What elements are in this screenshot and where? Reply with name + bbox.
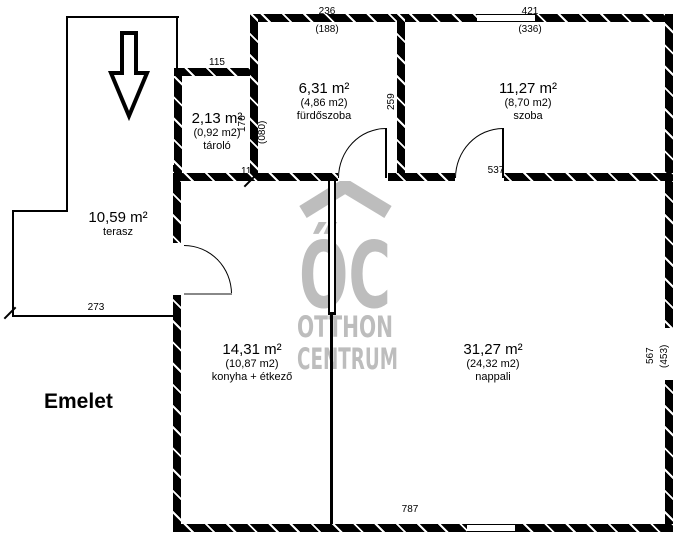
room-name: fürdőszoba (254, 110, 394, 123)
room-area-reduced: (4,86 m2) (254, 97, 394, 110)
dimension-tick (4, 307, 17, 320)
room-area-reduced: (0,92 m2) (178, 127, 256, 140)
wall-tarolo-top (174, 68, 258, 76)
room-area-reduced: (8,70 m2) (458, 97, 598, 110)
wall-konyha-nappali (328, 181, 336, 315)
terasz-edge-bottom (12, 315, 174, 317)
watermark-line1: OTTHON (297, 310, 393, 344)
room-area: 2,13 m² (178, 110, 256, 127)
dim-tarolo-top: 115 (197, 57, 237, 68)
room-name: szoba (458, 110, 598, 123)
room-name: nappali (423, 371, 563, 384)
room-area: 6,31 m² (254, 80, 394, 97)
furdoszoba-door-leaf (385, 128, 387, 178)
room-label-nappali: 31,27 m² (24,32 m2) nappali (423, 341, 563, 384)
room-area: 10,59 m² (50, 209, 186, 226)
floor-title: Emelet (44, 390, 113, 414)
room-area: 11,27 m² (458, 80, 598, 97)
dim-right-side: 567 (645, 336, 657, 376)
konyha-nappali-boundary (330, 315, 333, 524)
room-label-furdoszoba: 6,31 m² (4,86 m2) fürdőszoba (254, 80, 394, 123)
room-name: terasz (50, 226, 186, 239)
wall-bottom (173, 524, 673, 532)
down-arrow-icon (101, 30, 161, 125)
terasz-door-arc (184, 245, 232, 294)
room-label-szoba: 11,27 m² (8,70 m2) szoba (458, 80, 598, 123)
terasz-door-opening (173, 243, 181, 295)
wall-right (665, 14, 673, 532)
room-area: 14,31 m² (182, 341, 322, 358)
wall-top (250, 14, 673, 22)
szoba-door-arc (455, 128, 503, 178)
dim-szoba-top-reduced: (336) (505, 24, 555, 35)
terasz-edge-left-upper (66, 16, 68, 212)
watermark-logo-text: ŐC (299, 221, 391, 329)
room-name: tároló (178, 140, 256, 153)
terasz-edge-right (176, 16, 178, 70)
room-area-reduced: (24,32 m2) (423, 358, 563, 371)
dim-terasz-bottom: 273 (76, 302, 116, 313)
room-label-terasz: 10,59 m² terasz (50, 209, 186, 239)
room-name: konyha + étkező (182, 371, 322, 384)
terasz-edge-left-lower (12, 210, 14, 317)
terasz-door-leaf (184, 293, 232, 295)
room-area: 31,27 m² (423, 341, 563, 358)
window-bottom (467, 524, 515, 532)
dim-bottom-total: 787 (390, 504, 430, 515)
window-top (477, 14, 535, 22)
dim-right-side-reduced: (453) (659, 330, 671, 382)
terasz-edge-top (66, 16, 179, 18)
floor-plan: ŐC OTTHON CENTRUM 236 (188) 421 (336) 11… (0, 0, 687, 547)
watermark-roof-icon (303, 186, 388, 212)
szoba-door-leaf (502, 128, 504, 178)
room-label-konyha: 14,31 m² (10,87 m2) konyha + étkező (182, 341, 322, 384)
dim-furdoszoba-top-reduced: (188) (302, 24, 352, 35)
wall-furdoszoba-szoba (397, 14, 405, 181)
furdoszoba-door-arc (338, 128, 386, 178)
room-area-reduced: (10,87 m2) (182, 358, 322, 371)
room-label-tarolo: 2,13 m² (0,92 m2) tároló (178, 110, 256, 153)
